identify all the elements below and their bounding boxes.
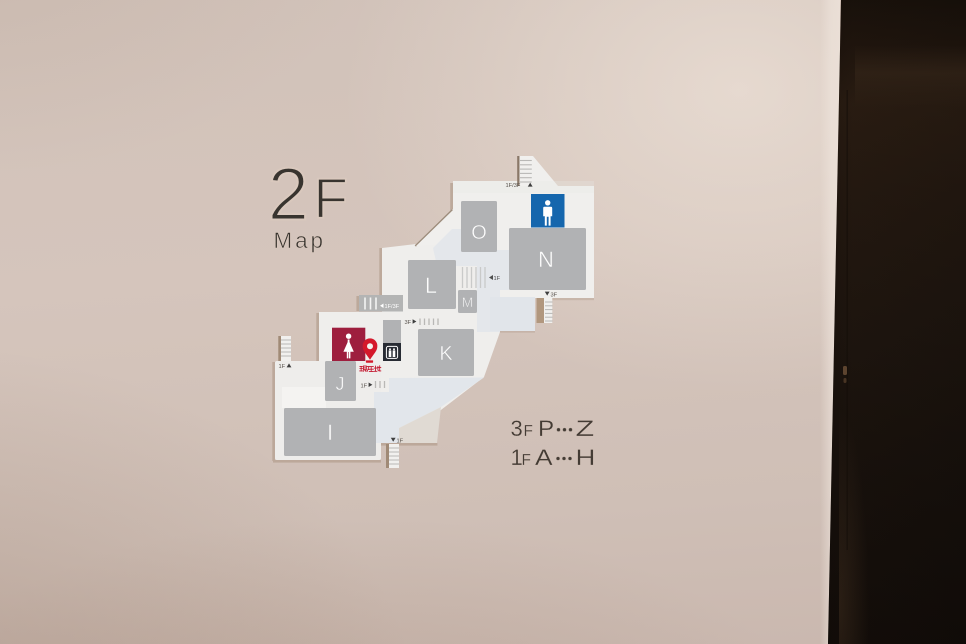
svg-text:M: M: [462, 294, 474, 310]
svg-text:3F: 3F: [405, 320, 412, 326]
svg-text:K: K: [439, 343, 453, 365]
svg-text:F: F: [524, 423, 533, 440]
svg-text:3F: 3F: [551, 292, 558, 298]
svg-text:1F/3F: 1F/3F: [506, 183, 521, 189]
svg-text:J: J: [336, 374, 345, 394]
svg-text:Map: Map: [274, 228, 326, 253]
svg-text:3: 3: [511, 416, 523, 441]
svg-text:P: P: [538, 416, 554, 441]
svg-text:H: H: [576, 445, 596, 470]
svg-text:1F: 1F: [494, 276, 501, 282]
svg-text:2: 2: [268, 152, 309, 235]
svg-text:N: N: [538, 247, 554, 272]
svg-text:F: F: [313, 167, 348, 231]
svg-text:1F: 1F: [397, 438, 404, 444]
svg-text:O: O: [471, 222, 487, 244]
svg-text:I: I: [327, 420, 333, 445]
svg-text:1F: 1F: [279, 364, 286, 370]
svg-text:1F/3F: 1F/3F: [385, 304, 400, 310]
svg-text:Z: Z: [576, 416, 595, 441]
svg-text:L: L: [425, 273, 437, 298]
svg-text:1F: 1F: [361, 384, 368, 390]
svg-text:F: F: [522, 452, 531, 469]
svg-text:A: A: [535, 446, 553, 470]
